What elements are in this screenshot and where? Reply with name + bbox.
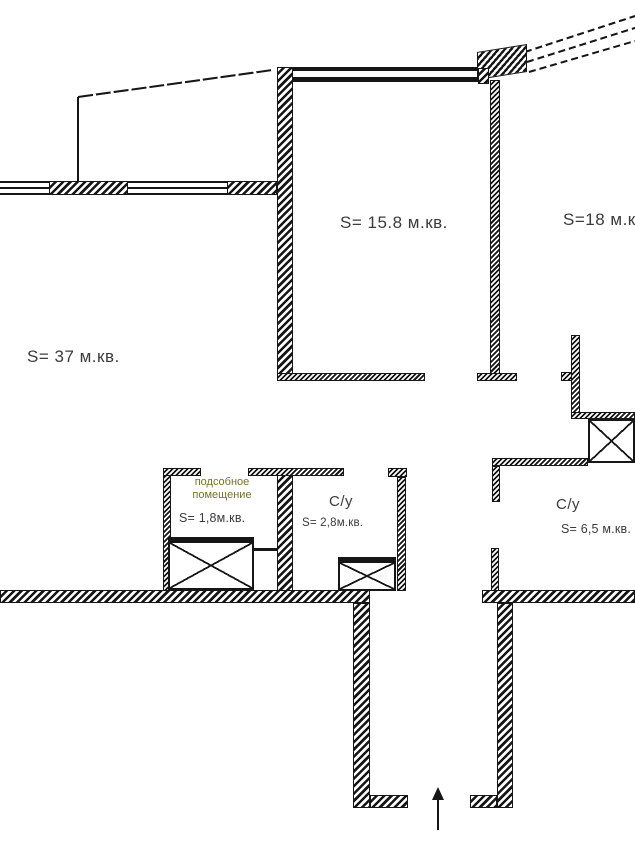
- wall-corner-tab: [478, 68, 489, 84]
- corridor-wall-right: [497, 603, 513, 808]
- wall-bottom-right: [482, 590, 635, 603]
- balcony-parapet-line: [78, 69, 273, 98]
- wall-wc-large-left-lower: [491, 548, 499, 591]
- wall-vertical-main-lower: [277, 468, 293, 593]
- wc-small-name-label: С/у: [329, 493, 353, 510]
- corridor-foot-left: [370, 795, 408, 808]
- entrance-arrow-icon: [429, 787, 447, 831]
- wc-small-shaft-icon: [338, 557, 396, 591]
- wall-utility-top-1: [163, 468, 201, 476]
- wall-pier-left-1: [49, 181, 128, 195]
- partition-room18-tick: [561, 372, 572, 381]
- utility-shaft-icon: [168, 537, 254, 590]
- partition-room18-lower: [571, 335, 580, 419]
- room-18-area-label: S=18 м.кв.: [563, 210, 635, 230]
- wc-large-name-label: С/у: [556, 496, 580, 513]
- ventilation-shaft-right-icon: [588, 419, 635, 463]
- wall-wc-large-top: [492, 458, 588, 466]
- wc-small-area-label: S= 2,8м.кв.: [302, 517, 363, 529]
- partition-shaft-top: [571, 412, 635, 419]
- utility-shaft-connector-line: [253, 548, 278, 551]
- partition-bedroom-right-cap: [477, 373, 517, 381]
- utility-name-line2: помещение: [192, 489, 251, 501]
- wall-wc-large-left-upper: [492, 466, 500, 502]
- utility-name-line1: подсобное: [195, 476, 250, 488]
- partition-bedroom-right: [490, 80, 500, 375]
- balcony-divider-line: [77, 97, 79, 183]
- window-band-top: [291, 67, 481, 82]
- wall-vertical-main-upper: [277, 67, 293, 378]
- wall-utility-top-2: [248, 468, 344, 476]
- corridor-foot-right: [470, 795, 497, 808]
- partition-hall-top: [277, 373, 425, 381]
- corridor-wall-left: [353, 603, 370, 808]
- utility-room-name-label: подсобное помещение: [176, 476, 268, 501]
- wall-pier-left-2: [227, 181, 277, 195]
- wall-wc-small-right-cap: [388, 468, 407, 477]
- room-bedroom-area-label: S= 15.8 м.кв.: [340, 213, 448, 233]
- floor-plan: S= 37 м.кв. S= 15.8 м.кв. S=18 м.кв. под…: [0, 0, 635, 849]
- wall-bottom-left: [0, 590, 370, 603]
- wc-large-area-label: S= 6,5 м.кв.: [561, 522, 631, 536]
- utility-area-label: S= 1,8м.кв.: [179, 511, 245, 525]
- room-living-area-label: S= 37 м.кв.: [27, 347, 120, 367]
- wall-wc-small-right: [397, 477, 406, 591]
